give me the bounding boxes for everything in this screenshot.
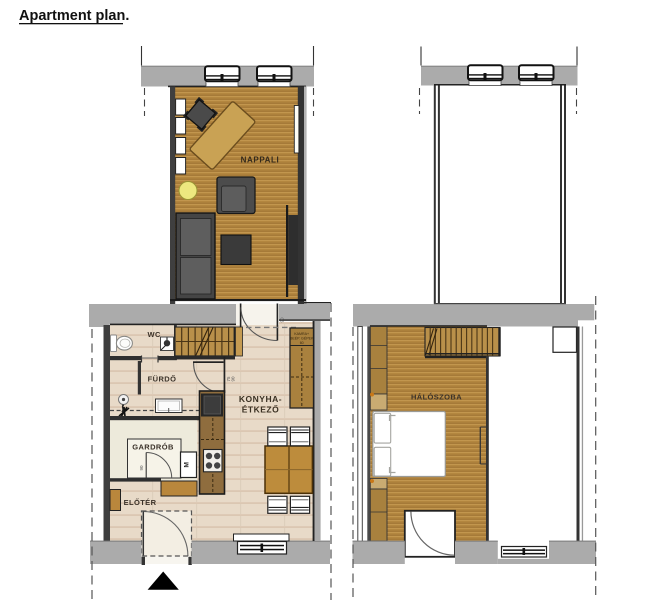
svg-text:Apartment plan.: Apartment plan.	[19, 8, 129, 24]
svg-text:KAMRA+: KAMRA+	[294, 332, 309, 336]
svg-text:90: 90	[139, 465, 144, 471]
svg-text:ÉTKEZŐ: ÉTKEZŐ	[242, 404, 279, 415]
svg-text:NAPPALI: NAPPALI	[241, 156, 280, 165]
svg-text:60: 60	[300, 341, 304, 345]
svg-text:90: 90	[280, 317, 285, 323]
svg-text:GARDRÓB: GARDRÓB	[132, 443, 174, 452]
svg-text:BEÉP. GÉPEK: BEÉP. GÉPEK	[290, 336, 314, 341]
svg-text:WC: WC	[148, 330, 161, 339]
svg-text:KONYHA-: KONYHA-	[239, 394, 282, 404]
svg-text:M: M	[184, 462, 191, 467]
svg-text:FÜRDŐ: FÜRDŐ	[148, 375, 177, 384]
svg-text:ELŐTÉR: ELŐTÉR	[124, 498, 157, 507]
svg-text:HÁLÓSZOBA: HÁLÓSZOBA	[411, 393, 462, 402]
svg-text:90: 90	[231, 376, 236, 382]
